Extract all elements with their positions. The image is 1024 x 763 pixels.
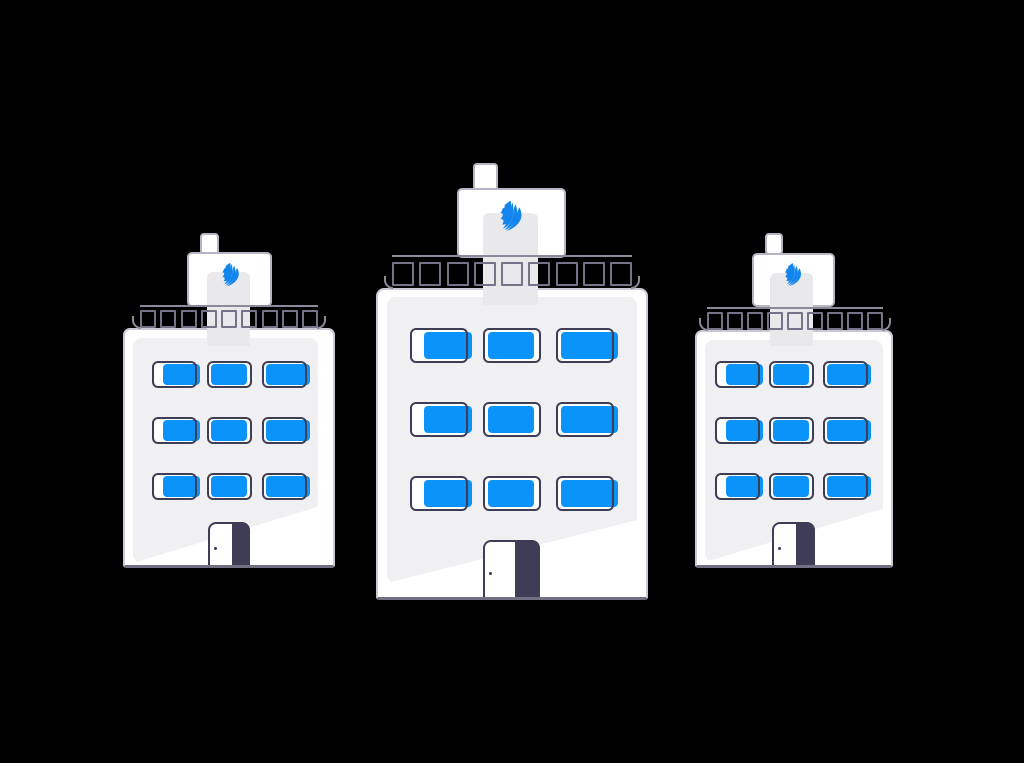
window-frame	[410, 402, 468, 437]
balusters-row	[140, 310, 318, 328]
window-frame	[207, 473, 252, 500]
window-frame	[152, 473, 197, 500]
window	[483, 328, 541, 363]
window-row	[715, 361, 868, 388]
window-frame	[410, 328, 468, 363]
baluster	[867, 312, 883, 330]
baluster	[610, 262, 632, 286]
baluster	[767, 312, 783, 330]
baluster	[583, 262, 605, 286]
baluster	[181, 310, 197, 328]
window	[152, 473, 197, 500]
window	[556, 402, 614, 437]
window	[207, 473, 252, 500]
window-row	[152, 417, 307, 444]
window-frame	[483, 328, 541, 363]
window-row	[410, 476, 614, 511]
parapet-rail	[392, 255, 632, 288]
window	[769, 417, 814, 444]
window	[410, 328, 468, 363]
illustration-stage	[0, 0, 1024, 763]
building-left	[123, 233, 335, 568]
window	[152, 361, 197, 388]
baluster	[160, 310, 176, 328]
windows-grid	[715, 361, 868, 500]
window-frame	[769, 473, 814, 500]
window	[823, 361, 868, 388]
rail-foot-right	[882, 318, 891, 331]
window-row	[152, 473, 307, 500]
window-frame	[152, 361, 197, 388]
window-frame	[823, 417, 868, 444]
window-frame	[152, 417, 197, 444]
window-frame	[715, 473, 760, 500]
baluster	[447, 262, 469, 286]
baluster	[827, 312, 843, 330]
window	[410, 476, 468, 511]
window	[715, 473, 760, 500]
window-frame	[769, 361, 814, 388]
window-frame	[715, 417, 760, 444]
window-row	[715, 417, 868, 444]
window	[207, 361, 252, 388]
baluster	[474, 262, 496, 286]
baluster	[747, 312, 763, 330]
window-frame	[262, 361, 307, 388]
window-frame	[556, 402, 614, 437]
window-row	[152, 361, 307, 388]
book-pages-logo-icon	[486, 195, 532, 243]
baluster	[707, 312, 723, 330]
parapet-rail	[140, 305, 318, 328]
windows-grid	[152, 361, 307, 500]
baluster	[419, 262, 441, 286]
window-frame	[410, 476, 468, 511]
window	[483, 476, 541, 511]
window	[262, 473, 307, 500]
baluster	[201, 310, 217, 328]
baluster	[262, 310, 278, 328]
window	[152, 417, 197, 444]
window	[262, 417, 307, 444]
baluster	[302, 310, 318, 328]
window	[715, 361, 760, 388]
baluster	[556, 262, 578, 286]
window	[769, 361, 814, 388]
building-center	[376, 163, 648, 600]
door-dark-panel	[796, 523, 814, 565]
balusters-row	[707, 312, 883, 330]
window	[410, 402, 468, 437]
window-frame	[483, 402, 541, 437]
baluster	[528, 262, 550, 286]
window	[823, 473, 868, 500]
window	[556, 328, 614, 363]
door-dark-panel	[515, 541, 539, 597]
window	[769, 473, 814, 500]
window-frame	[207, 361, 252, 388]
window	[823, 417, 868, 444]
door	[208, 522, 250, 565]
door-knob-icon	[214, 547, 217, 550]
baluster	[241, 310, 257, 328]
window-row	[410, 328, 614, 363]
window-frame	[483, 476, 541, 511]
baluster	[501, 262, 523, 286]
baluster	[392, 262, 414, 286]
chimney	[473, 163, 498, 191]
door	[483, 540, 540, 597]
window-frame	[715, 361, 760, 388]
book-pages-logo-icon	[211, 258, 247, 296]
window-frame	[823, 361, 868, 388]
balusters-row	[392, 262, 632, 286]
book-pages-logo-icon	[774, 259, 809, 295]
baluster	[807, 312, 823, 330]
baluster	[727, 312, 743, 330]
baluster	[847, 312, 863, 330]
baluster	[282, 310, 298, 328]
door	[772, 522, 815, 565]
baluster	[787, 312, 803, 330]
parapet-rail	[707, 307, 883, 330]
window-frame	[556, 328, 614, 363]
door-knob-icon	[778, 547, 781, 550]
window-row	[715, 473, 868, 500]
window-frame	[262, 417, 307, 444]
door-dark-panel	[232, 523, 249, 565]
window	[262, 361, 307, 388]
window	[207, 417, 252, 444]
chimney	[765, 233, 783, 255]
building-right	[695, 233, 893, 568]
windows-grid	[410, 328, 614, 511]
window	[715, 417, 760, 444]
window	[483, 402, 541, 437]
window-frame	[769, 417, 814, 444]
window-frame	[262, 473, 307, 500]
window-row	[410, 402, 614, 437]
window-frame	[556, 476, 614, 511]
window-frame	[823, 473, 868, 500]
window	[556, 476, 614, 511]
baluster	[140, 310, 156, 328]
baluster	[221, 310, 237, 328]
door-knob-icon	[489, 572, 492, 575]
window-frame	[207, 417, 252, 444]
